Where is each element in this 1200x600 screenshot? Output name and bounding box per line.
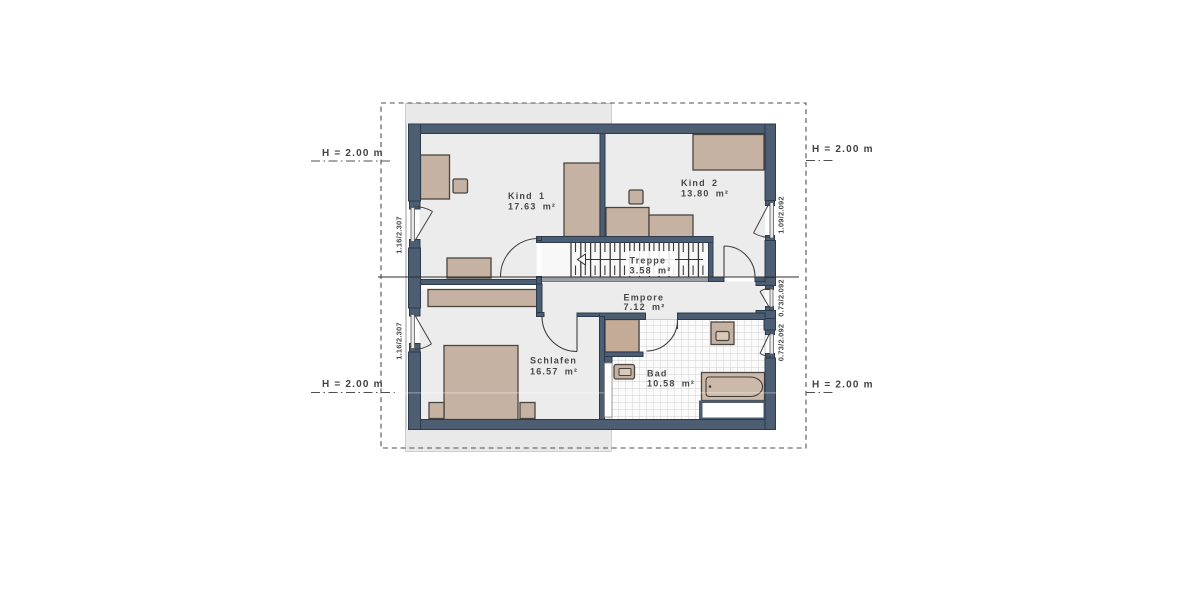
svg-text:Treppe: Treppe [630,256,667,266]
svg-text:H = 2.00 m: H = 2.00 m [812,380,874,391]
svg-text:1.16/2.307: 1.16/2.307 [395,322,404,359]
svg-text:H = 2.00 m: H = 2.00 m [322,148,384,159]
svg-text:Bad: Bad [647,369,668,379]
svg-text:Schlafen: Schlafen [530,356,577,366]
svg-text:1.16/2.307: 1.16/2.307 [395,216,404,253]
svg-text:17.63 m²: 17.63 m² [508,202,556,212]
svg-text:H = 2.00 m: H = 2.00 m [322,379,384,390]
svg-text:10.58 m²: 10.58 m² [647,379,695,389]
svg-text:0.73/2.092: 0.73/2.092 [777,279,786,316]
svg-text:Empore: Empore [624,293,665,303]
svg-text:0.73/2.092: 0.73/2.092 [777,324,786,361]
svg-text:H = 2.00 m: H = 2.00 m [812,144,874,155]
svg-text:7.12 m²: 7.12 m² [624,302,666,312]
svg-text:16.57 m²: 16.57 m² [530,367,578,377]
svg-text:3.58 m²: 3.58 m² [630,266,672,276]
svg-text:Kind 2: Kind 2 [681,178,718,188]
svg-text:13.80 m²: 13.80 m² [681,189,729,199]
svg-text:Kind 1: Kind 1 [508,191,545,201]
svg-text:1.09/2.092: 1.09/2.092 [777,196,786,233]
